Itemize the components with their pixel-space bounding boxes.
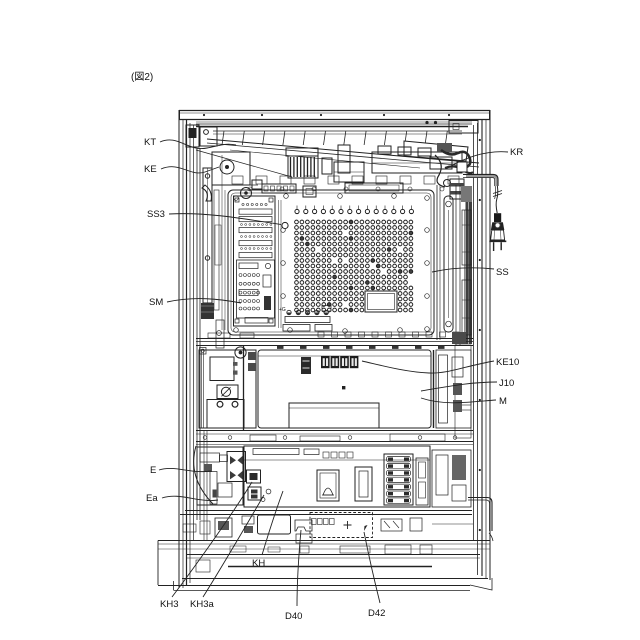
svg-text:E: E bbox=[150, 465, 156, 476]
svg-text:KH3: KH3 bbox=[160, 599, 178, 610]
svg-text:KH3a: KH3a bbox=[190, 599, 214, 610]
svg-text:KE: KE bbox=[144, 164, 157, 175]
svg-text:J10: J10 bbox=[499, 378, 514, 389]
svg-text:D42: D42 bbox=[368, 608, 385, 619]
svg-text:Ea: Ea bbox=[146, 493, 158, 504]
svg-text:SM: SM bbox=[149, 297, 163, 308]
svg-text:D40: D40 bbox=[285, 611, 302, 622]
svg-text:(図2): (図2) bbox=[131, 71, 153, 83]
svg-text:+G: +G bbox=[279, 307, 286, 313]
svg-text:M: M bbox=[499, 396, 507, 407]
svg-text:KE10: KE10 bbox=[496, 357, 519, 368]
svg-text:SS3: SS3 bbox=[147, 209, 165, 220]
svg-text:SS: SS bbox=[496, 267, 509, 278]
svg-text:KT: KT bbox=[144, 137, 156, 148]
svg-text:KR: KR bbox=[510, 147, 523, 158]
svg-text:KH: KH bbox=[252, 558, 265, 569]
